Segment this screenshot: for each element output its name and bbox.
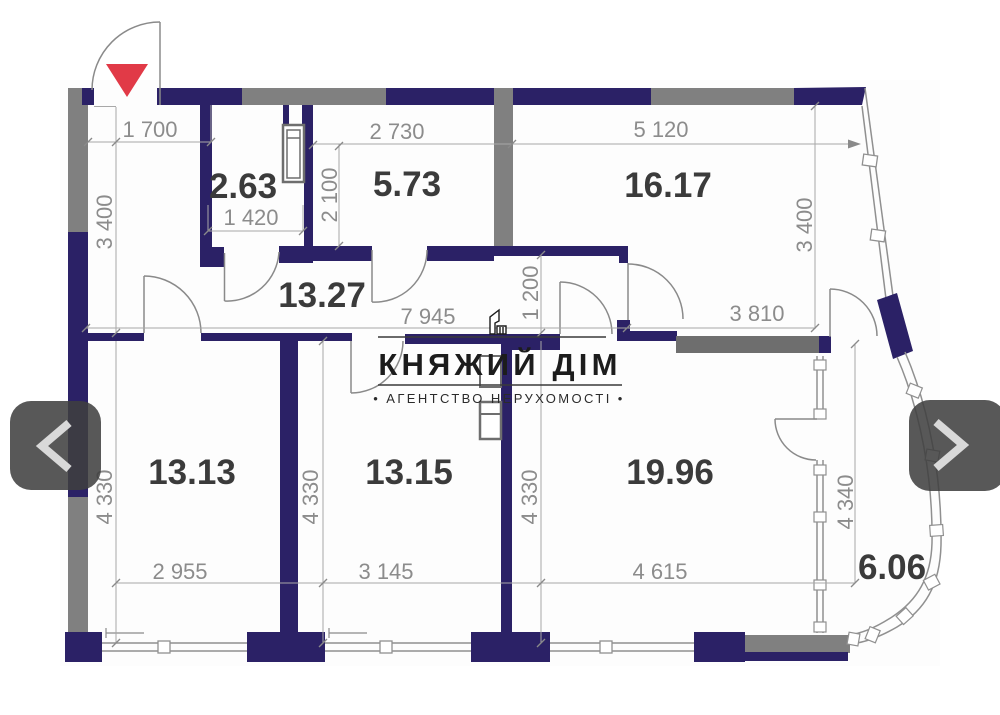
svg-text:1 420: 1 420 [223, 205, 278, 230]
svg-text:7 945: 7 945 [400, 304, 455, 329]
svg-text:4 330: 4 330 [517, 469, 542, 524]
svg-text:19.96: 19.96 [626, 453, 714, 492]
svg-text:4 340: 4 340 [833, 474, 858, 529]
svg-text:1 700: 1 700 [122, 117, 177, 142]
svg-text:4 330: 4 330 [298, 469, 323, 524]
svg-text:3 810: 3 810 [729, 301, 784, 326]
svg-text:2 955: 2 955 [152, 559, 207, 584]
svg-text:2 100: 2 100 [317, 167, 342, 222]
svg-text:1 200: 1 200 [518, 265, 543, 320]
svg-text:4 615: 4 615 [632, 559, 687, 584]
svg-text:5 120: 5 120 [633, 117, 688, 142]
svg-text:13.15: 13.15 [365, 453, 453, 492]
svg-text:5.73: 5.73 [373, 165, 441, 204]
svg-text:13.13: 13.13 [148, 453, 236, 492]
svg-text:6.06: 6.06 [858, 548, 926, 587]
svg-text:16.17: 16.17 [624, 166, 712, 205]
svg-text:• АГЕНТСТВО НЕРУХОМОСТІ •: • АГЕНТСТВО НЕРУХОМОСТІ • [373, 391, 624, 406]
svg-text:КНЯЖИЙ ДІМ: КНЯЖИЙ ДІМ [378, 346, 621, 382]
svg-text:3 400: 3 400 [92, 194, 117, 249]
svg-text:2 730: 2 730 [369, 119, 424, 144]
svg-text:3 145: 3 145 [358, 559, 413, 584]
svg-text:13.27: 13.27 [278, 276, 366, 315]
svg-text:3 400: 3 400 [792, 197, 817, 252]
svg-text:2.63: 2.63 [209, 167, 277, 206]
